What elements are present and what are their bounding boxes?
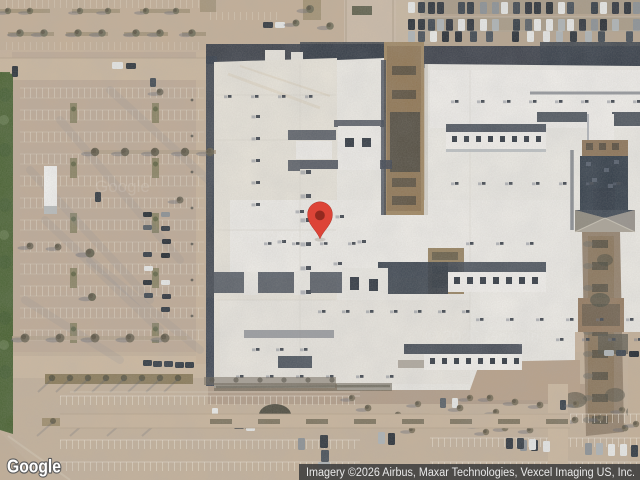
svg-text:Google: Google [7, 457, 61, 477]
svg-text:Imagery ©2026 Airbus, Maxar Te: Imagery ©2026 Airbus, Maxar Technologies… [306, 467, 635, 479]
